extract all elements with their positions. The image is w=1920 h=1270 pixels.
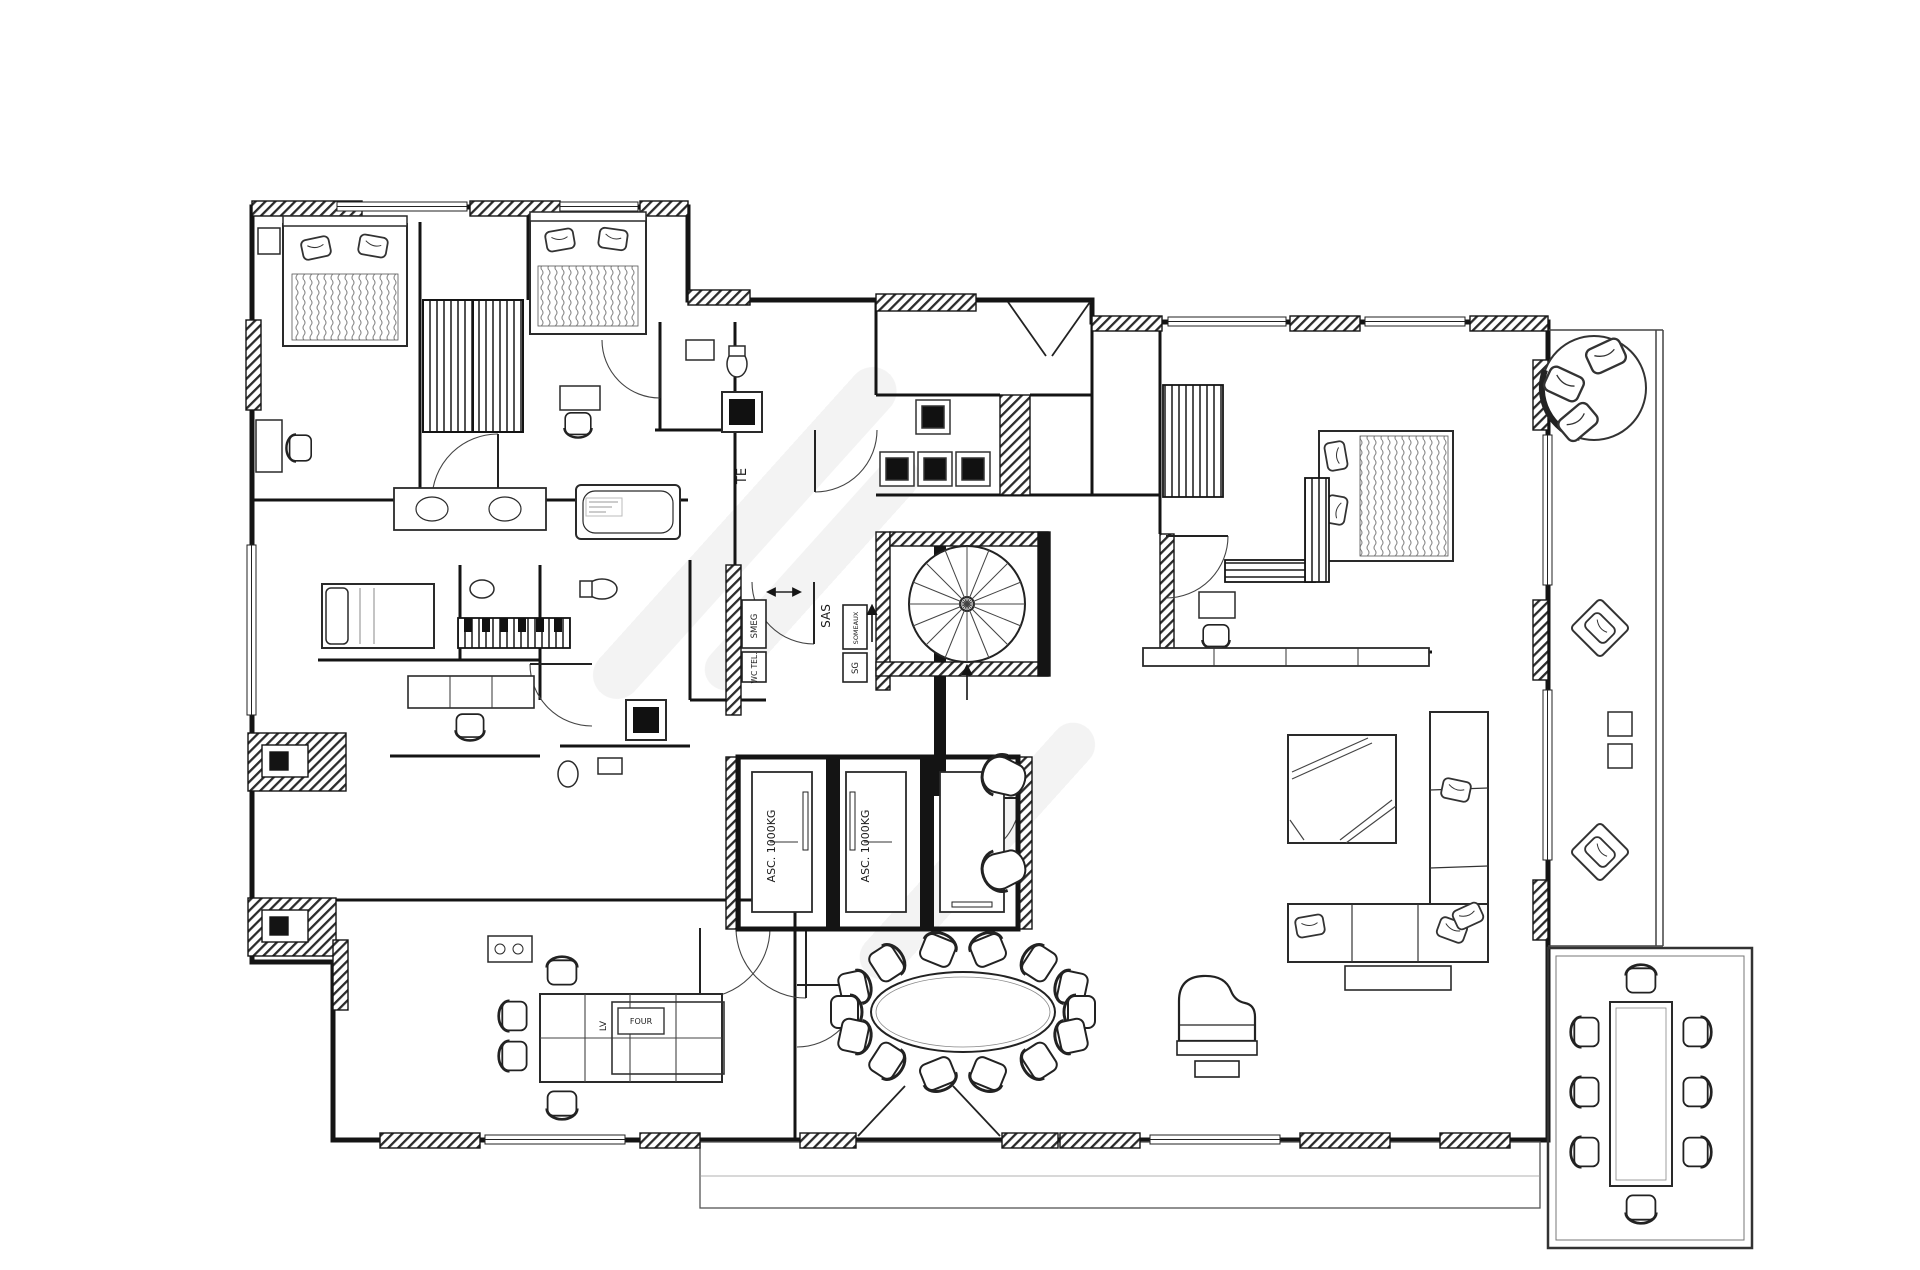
- closet-comb-1: [1163, 385, 1223, 497]
- outdoor-table: [1610, 1002, 1672, 1186]
- label-sas: SAS: [819, 604, 833, 628]
- louvered-cabinet: [458, 618, 570, 648]
- label-wc-tel: WC TEL.: [750, 653, 759, 684]
- label-smeg: SMEG: [750, 614, 760, 639]
- piano-bench: [1195, 1061, 1239, 1077]
- label-elevator-2: ASC. 1000KG: [859, 810, 872, 883]
- wardrobe-closets: [423, 300, 523, 432]
- label-elevator-1: ASC. 1000KG: [765, 810, 778, 883]
- side-table-1: [1608, 712, 1632, 736]
- bathtub-spec-note: [586, 498, 622, 516]
- label-four: FOUR: [630, 1017, 653, 1026]
- label-sg: SG: [851, 662, 861, 674]
- side-table-2: [1608, 744, 1632, 768]
- elevators: [738, 757, 1018, 929]
- closet-comb-3: [1305, 478, 1329, 582]
- label-lv: LV: [599, 1020, 609, 1031]
- label-te: TE: [735, 468, 750, 485]
- closet-comb-2: [1225, 560, 1315, 582]
- label-someaux: SOMEAUX: [852, 611, 860, 644]
- floor-plan-drawing: TE SAS SMEG WC TEL. SOMEAUX SG ASC. 1000…: [0, 0, 1920, 1270]
- floor-plan-page: FLOOR PLAN: [0, 0, 1920, 1270]
- coffee-table: [1288, 735, 1396, 843]
- ottoman: [1345, 966, 1451, 990]
